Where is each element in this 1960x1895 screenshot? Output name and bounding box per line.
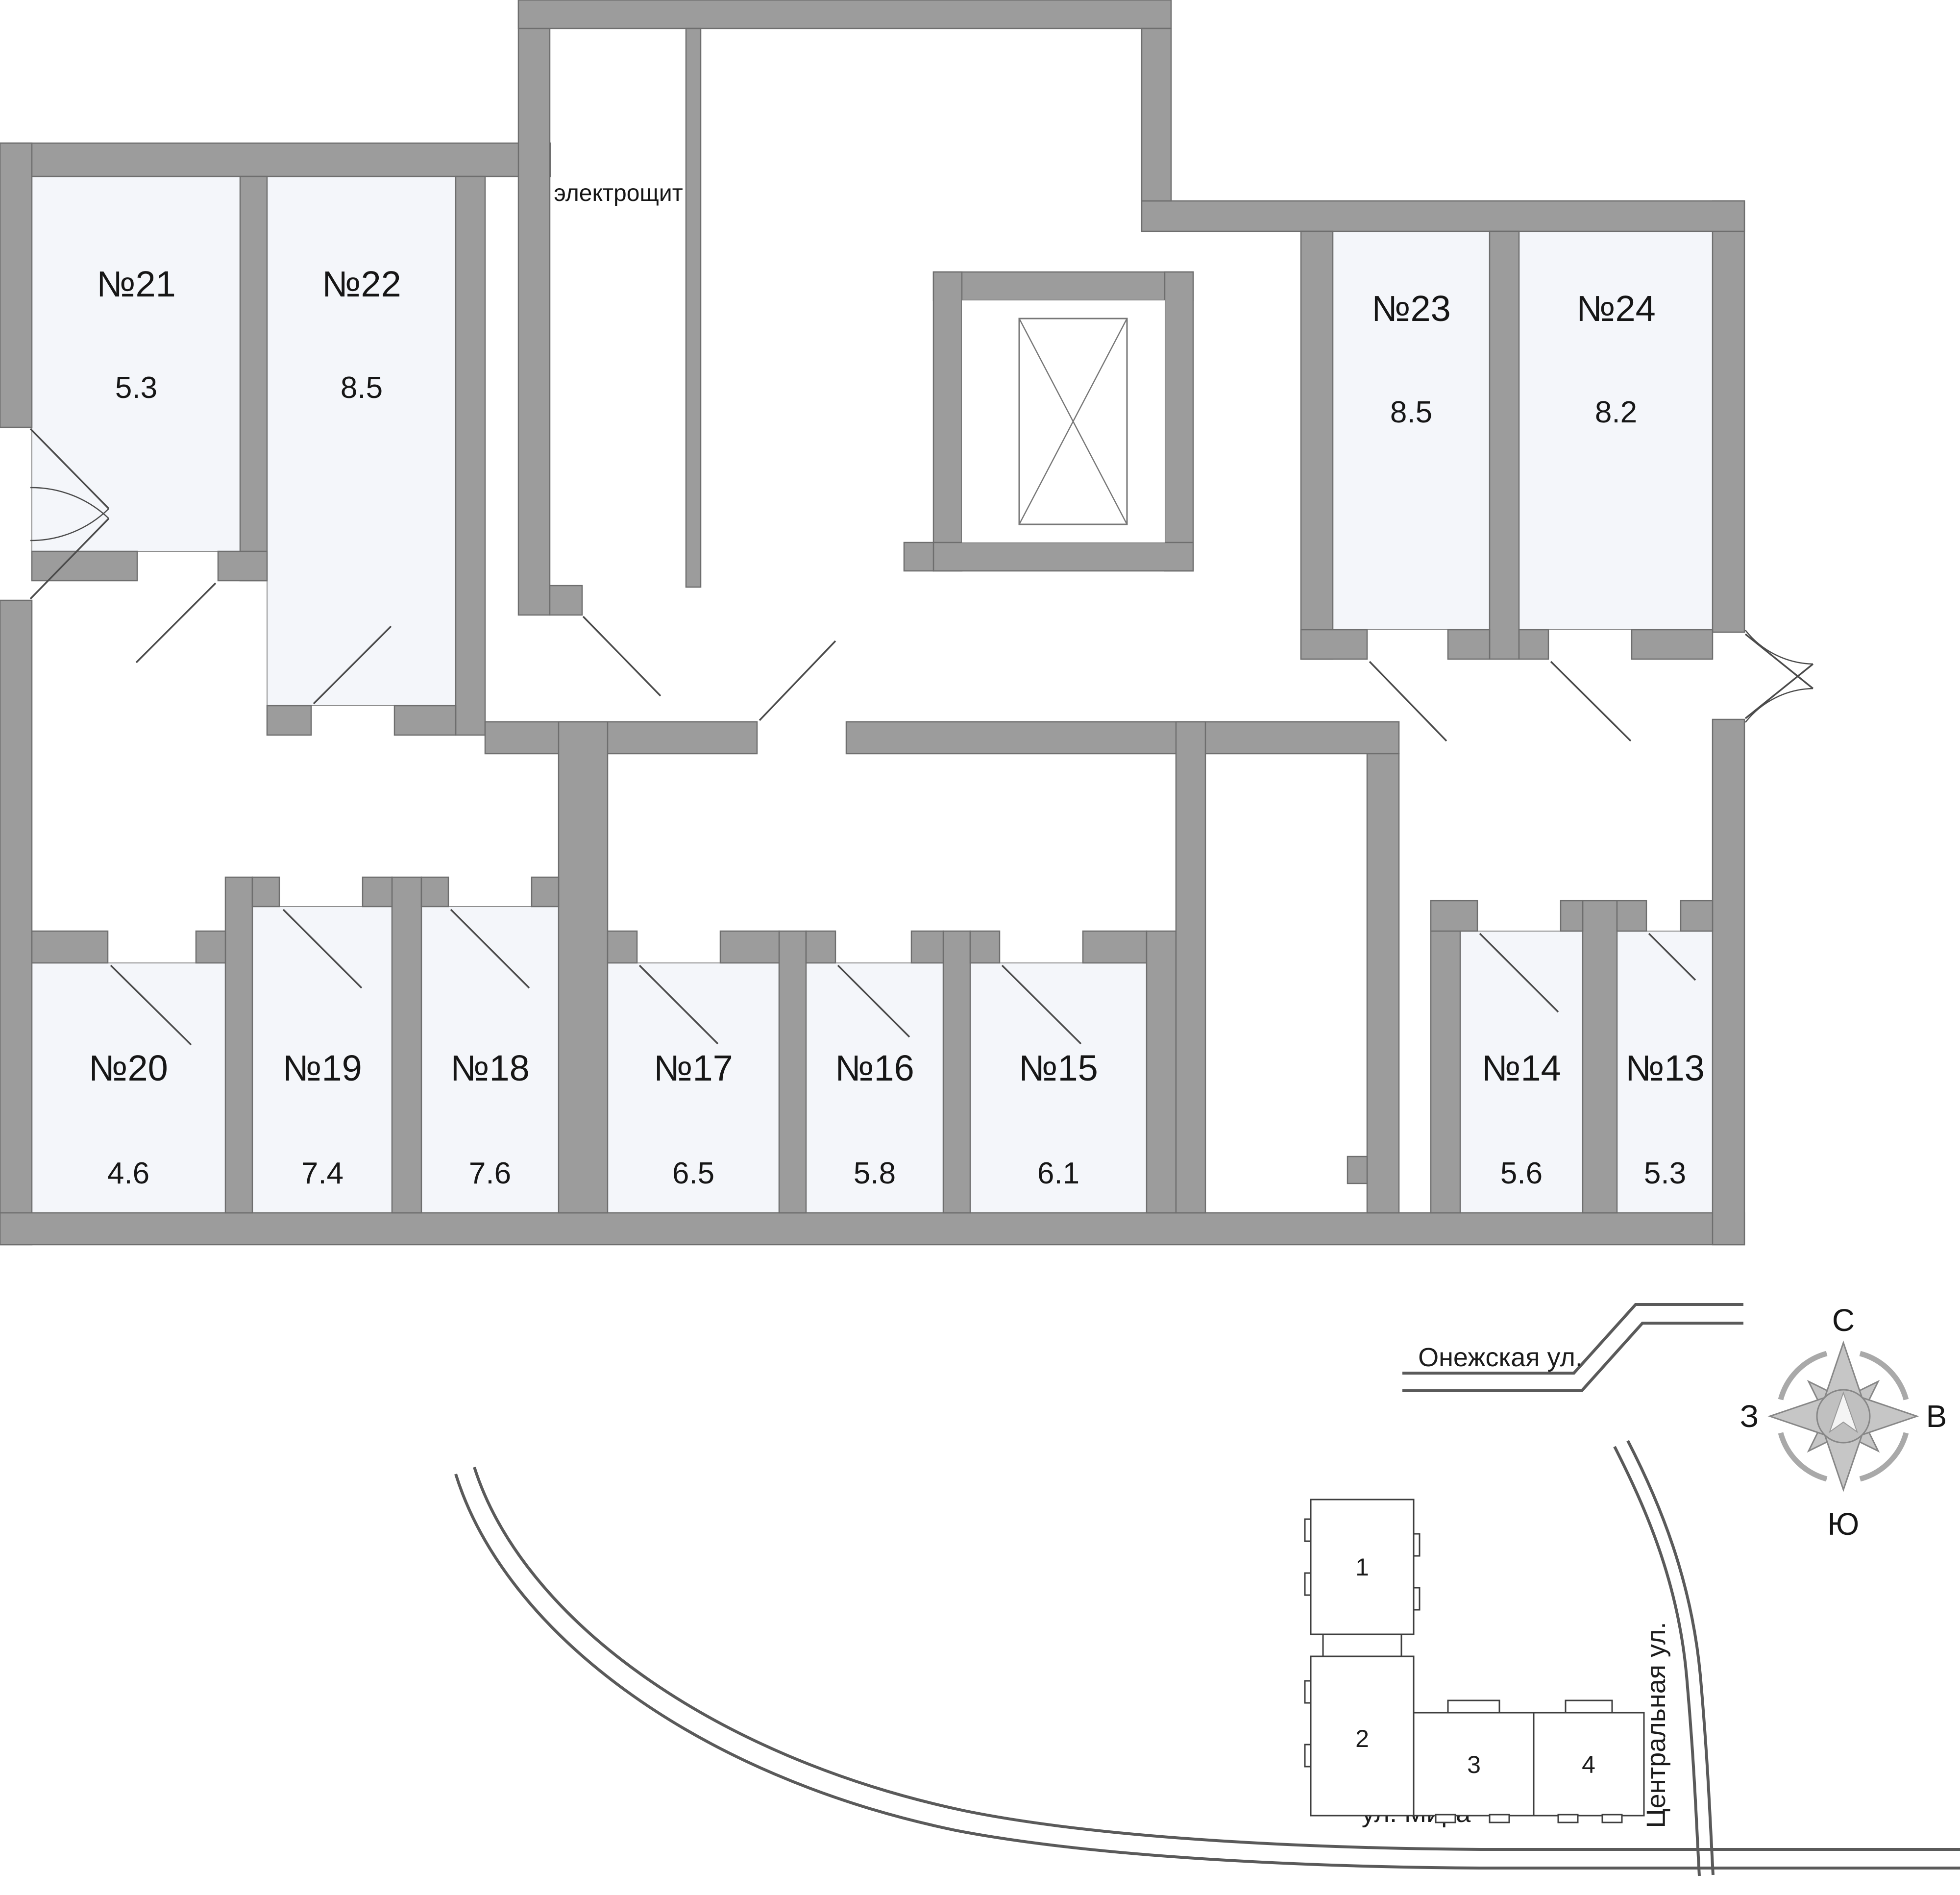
site-section-1-label: 1 bbox=[1355, 1553, 1369, 1581]
wall-segment bbox=[394, 706, 456, 735]
room-21-number: №21 bbox=[97, 264, 176, 304]
wall-segment bbox=[225, 877, 252, 1213]
wall-segment bbox=[32, 551, 137, 581]
compass-west-label: З bbox=[1740, 1399, 1759, 1434]
room-20-number: №20 bbox=[89, 1048, 168, 1088]
wall-segment bbox=[0, 1213, 1744, 1245]
wall-segment bbox=[1347, 1157, 1367, 1183]
wall-segment bbox=[456, 176, 485, 735]
site-plan: 1 2 3 4 bbox=[1305, 1500, 1644, 1822]
compass-south-label: Ю bbox=[1828, 1506, 1860, 1542]
wall-segment bbox=[779, 931, 806, 1213]
elevator-wall bbox=[933, 542, 1193, 571]
wall-segment bbox=[267, 706, 311, 735]
wall-segment bbox=[1713, 719, 1744, 1245]
room-21-area: 5.3 bbox=[115, 371, 157, 405]
site-notch bbox=[1305, 1519, 1311, 1541]
room-24-area: 8.2 bbox=[1595, 395, 1637, 429]
wall-segment bbox=[1519, 630, 1548, 659]
wall-segment bbox=[1301, 231, 1333, 659]
wall-segment bbox=[1561, 901, 1583, 931]
wall-segment bbox=[0, 143, 32, 427]
wall-segment bbox=[1632, 630, 1713, 659]
site-notch bbox=[1414, 1534, 1420, 1556]
floor-plan-page: №21 5.3 №22 8.5 №23 8.5 №24 8.2 №20 4.6 … bbox=[0, 0, 1960, 1895]
wall-segment bbox=[806, 931, 835, 963]
wall-segment bbox=[608, 931, 637, 963]
wall-segment bbox=[363, 877, 392, 907]
entrance-door-right bbox=[1745, 630, 1813, 722]
room-17-area: 6.5 bbox=[672, 1157, 714, 1190]
wall-segment bbox=[252, 877, 279, 907]
wall-segment bbox=[0, 143, 550, 176]
compass-north-label: С bbox=[1832, 1303, 1855, 1338]
wall-segment bbox=[0, 600, 32, 1245]
room-24-number: №24 bbox=[1576, 288, 1656, 329]
site-section-2-label: 2 bbox=[1355, 1725, 1369, 1752]
room-23-area: 8.5 bbox=[1390, 395, 1432, 429]
elevator-wall bbox=[933, 272, 1193, 300]
roads: Онежская ул. ул. Мира Центральная ул. bbox=[456, 1304, 1960, 1876]
room-22-number: №22 bbox=[322, 264, 401, 304]
wall-segment bbox=[559, 722, 608, 1213]
room-23-number: №23 bbox=[1372, 288, 1451, 329]
floor-plan-canvas: №21 5.3 №22 8.5 №23 8.5 №24 8.2 №20 4.6 … bbox=[0, 0, 1960, 1895]
compass-east-label: В bbox=[1926, 1399, 1947, 1434]
wall-segment bbox=[846, 722, 1399, 754]
room-14-number: №14 bbox=[1482, 1048, 1561, 1088]
site-notch bbox=[1414, 1588, 1420, 1610]
room-21 bbox=[32, 176, 240, 551]
electro-room-label: электрощит bbox=[554, 180, 683, 206]
door-arc bbox=[1745, 630, 1813, 664]
site-section-4-label: 4 bbox=[1582, 1751, 1595, 1778]
wall-segment bbox=[1681, 901, 1713, 931]
room-17-number: №17 bbox=[654, 1048, 733, 1088]
wall-segment bbox=[1490, 231, 1519, 659]
road-mira-line bbox=[474, 1467, 1960, 1849]
street-label-tsentralnaya: Центральная ул. bbox=[1641, 1622, 1671, 1828]
room-22-area: 8.5 bbox=[341, 371, 383, 405]
room-18-area: 7.6 bbox=[469, 1157, 511, 1190]
room-16-number: №16 bbox=[835, 1048, 914, 1088]
room-13-number: №13 bbox=[1625, 1048, 1705, 1088]
site-notch bbox=[1558, 1815, 1578, 1822]
wall-segment bbox=[532, 877, 559, 907]
site-notch bbox=[1436, 1815, 1455, 1822]
wall-segment bbox=[1176, 722, 1205, 1213]
compass-rose: С Ю З В bbox=[1740, 1303, 1947, 1542]
wall-segment bbox=[421, 877, 448, 907]
room-15-number: №15 bbox=[1019, 1048, 1098, 1088]
wall-segment bbox=[911, 931, 943, 963]
wall-segment bbox=[1583, 901, 1617, 1213]
door-swing-corridor bbox=[759, 641, 835, 720]
wall-segment bbox=[518, 0, 550, 615]
elevator bbox=[904, 272, 1193, 571]
wall-segment bbox=[1142, 28, 1171, 201]
wall-segment bbox=[686, 28, 701, 587]
room-13-area: 5.3 bbox=[1644, 1157, 1686, 1190]
wall-segment bbox=[196, 931, 225, 963]
wall-segment bbox=[1301, 630, 1367, 659]
room-18-number: №18 bbox=[450, 1048, 530, 1088]
street-label-onezhskaya: Онежская ул. bbox=[1418, 1343, 1583, 1372]
wall-segment bbox=[392, 877, 421, 1213]
wall-segment bbox=[518, 0, 1171, 28]
wall-segment bbox=[240, 176, 267, 581]
wall-segment bbox=[1448, 630, 1490, 659]
door-leaf bbox=[1745, 664, 1813, 718]
elevator-wall bbox=[933, 272, 962, 571]
site-connector bbox=[1323, 1634, 1401, 1656]
wall-segment bbox=[32, 931, 108, 963]
wall-segment bbox=[1431, 901, 1477, 931]
door-swing-21 bbox=[136, 583, 216, 663]
door-leaf bbox=[1745, 634, 1813, 689]
room-19-area: 7.4 bbox=[301, 1157, 343, 1190]
door-swing-24 bbox=[1551, 662, 1631, 741]
wall-segment bbox=[1083, 931, 1147, 963]
elevator-wall bbox=[1165, 272, 1193, 571]
wall-segment bbox=[970, 931, 1000, 963]
site-notch bbox=[1305, 1681, 1311, 1703]
wall-segment bbox=[1147, 931, 1176, 1213]
site-notch bbox=[1305, 1745, 1311, 1767]
wall-segment bbox=[1713, 201, 1744, 632]
room-19-number: №19 bbox=[283, 1048, 362, 1088]
wall-segment bbox=[943, 931, 970, 1213]
wall-segment bbox=[550, 586, 582, 615]
wall-segment bbox=[1367, 754, 1399, 1213]
wall-segment bbox=[1431, 901, 1460, 1213]
wall-segment bbox=[720, 931, 779, 963]
wall-segment bbox=[485, 722, 757, 754]
wall-segment bbox=[1617, 901, 1646, 931]
site-section-3-label: 3 bbox=[1467, 1751, 1481, 1778]
room-15-area: 6.1 bbox=[1037, 1157, 1079, 1190]
room-22 bbox=[267, 176, 456, 706]
door-swing-electro bbox=[583, 616, 661, 696]
site-notch bbox=[1602, 1815, 1622, 1822]
site-notch bbox=[1305, 1573, 1311, 1595]
room-20-area: 4.6 bbox=[107, 1157, 149, 1190]
door-arc bbox=[1745, 689, 1813, 722]
site-notch bbox=[1490, 1815, 1509, 1822]
room-16-area: 5.8 bbox=[854, 1157, 896, 1190]
room-14-area: 5.6 bbox=[1500, 1157, 1543, 1190]
elevator-wall bbox=[904, 542, 933, 571]
road-mira-line bbox=[456, 1474, 1960, 1868]
wall-segment bbox=[1142, 201, 1744, 231]
wall-segment bbox=[218, 551, 267, 581]
